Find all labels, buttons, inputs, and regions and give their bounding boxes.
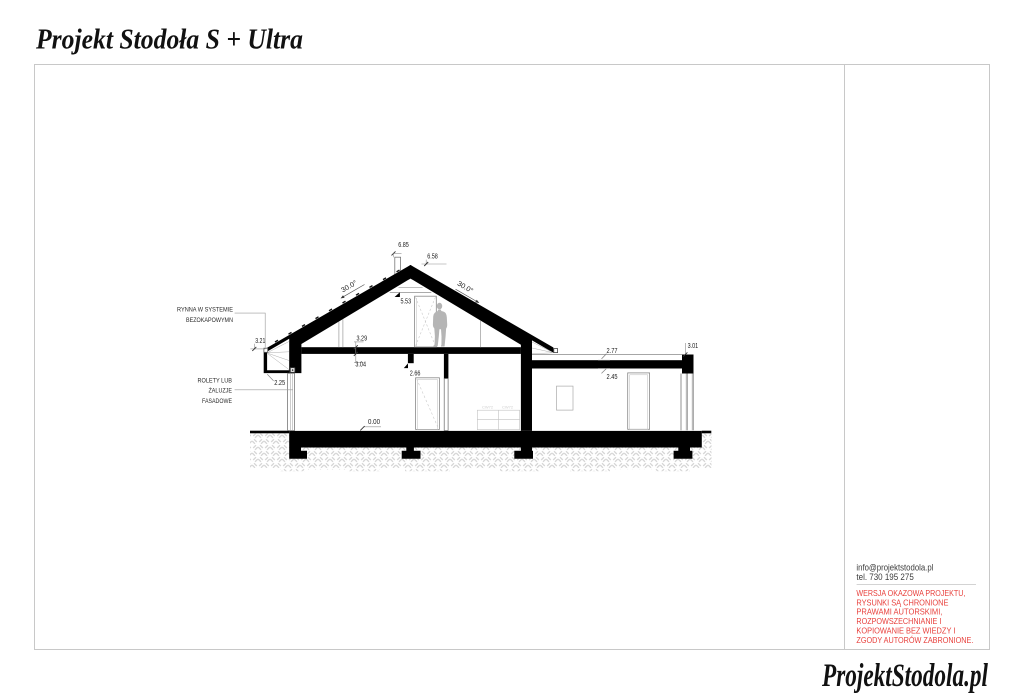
svg-text:BEZOKAPOWYMN: BEZOKAPOWYMN [186,317,233,324]
svg-text:ŻALUZJE: ŻALUZJE [209,386,233,395]
svg-text:6.85: 6.85 [398,242,409,249]
svg-text:FASADOWE: FASADOWE [202,398,232,405]
svg-text:3.01: 3.01 [688,343,699,350]
svg-text:5.53: 5.53 [401,299,412,306]
svg-text:Projekt Stodoła S + Ultra: Projekt Stodoła S + Ultra [35,24,303,56]
svg-text:PRAWAMI AUTORSKIMI,: PRAWAMI AUTORSKIMI, [856,607,942,617]
svg-text:CW72: CW72 [482,405,494,410]
svg-text:3.21: 3.21 [255,338,265,345]
svg-text:tel. 730 195 275: tel. 730 195 275 [856,572,913,582]
svg-text:KOPIOWANIE BEZ WIEDZY I: KOPIOWANIE BEZ WIEDZY I [856,626,955,636]
svg-text:WERSJA OKAZOWA PROJEKTU,: WERSJA OKAZOWA PROJEKTU, [856,588,965,598]
svg-text:2.77: 2.77 [607,348,618,355]
svg-text:ZGODY AUTORÓW ZABRONIONE.: ZGODY AUTORÓW ZABRONIONE. [856,635,973,645]
svg-text:ROLETY LUB: ROLETY LUB [198,377,233,384]
svg-text:RYNNA W SYSTEMIE: RYNNA W SYSTEMIE [177,306,233,313]
svg-text:3.04: 3.04 [355,362,366,369]
svg-text:CW72: CW72 [502,405,514,410]
svg-text:6.58: 6.58 [427,253,438,260]
svg-text:2.66: 2.66 [410,371,421,378]
svg-text:2.45: 2.45 [607,374,618,381]
svg-text:3.29: 3.29 [357,336,368,343]
svg-text:2.25: 2.25 [274,380,285,387]
svg-text:0.00: 0.00 [368,419,380,426]
svg-text:ProjektStodola.pl: ProjektStodola.pl [821,658,988,694]
